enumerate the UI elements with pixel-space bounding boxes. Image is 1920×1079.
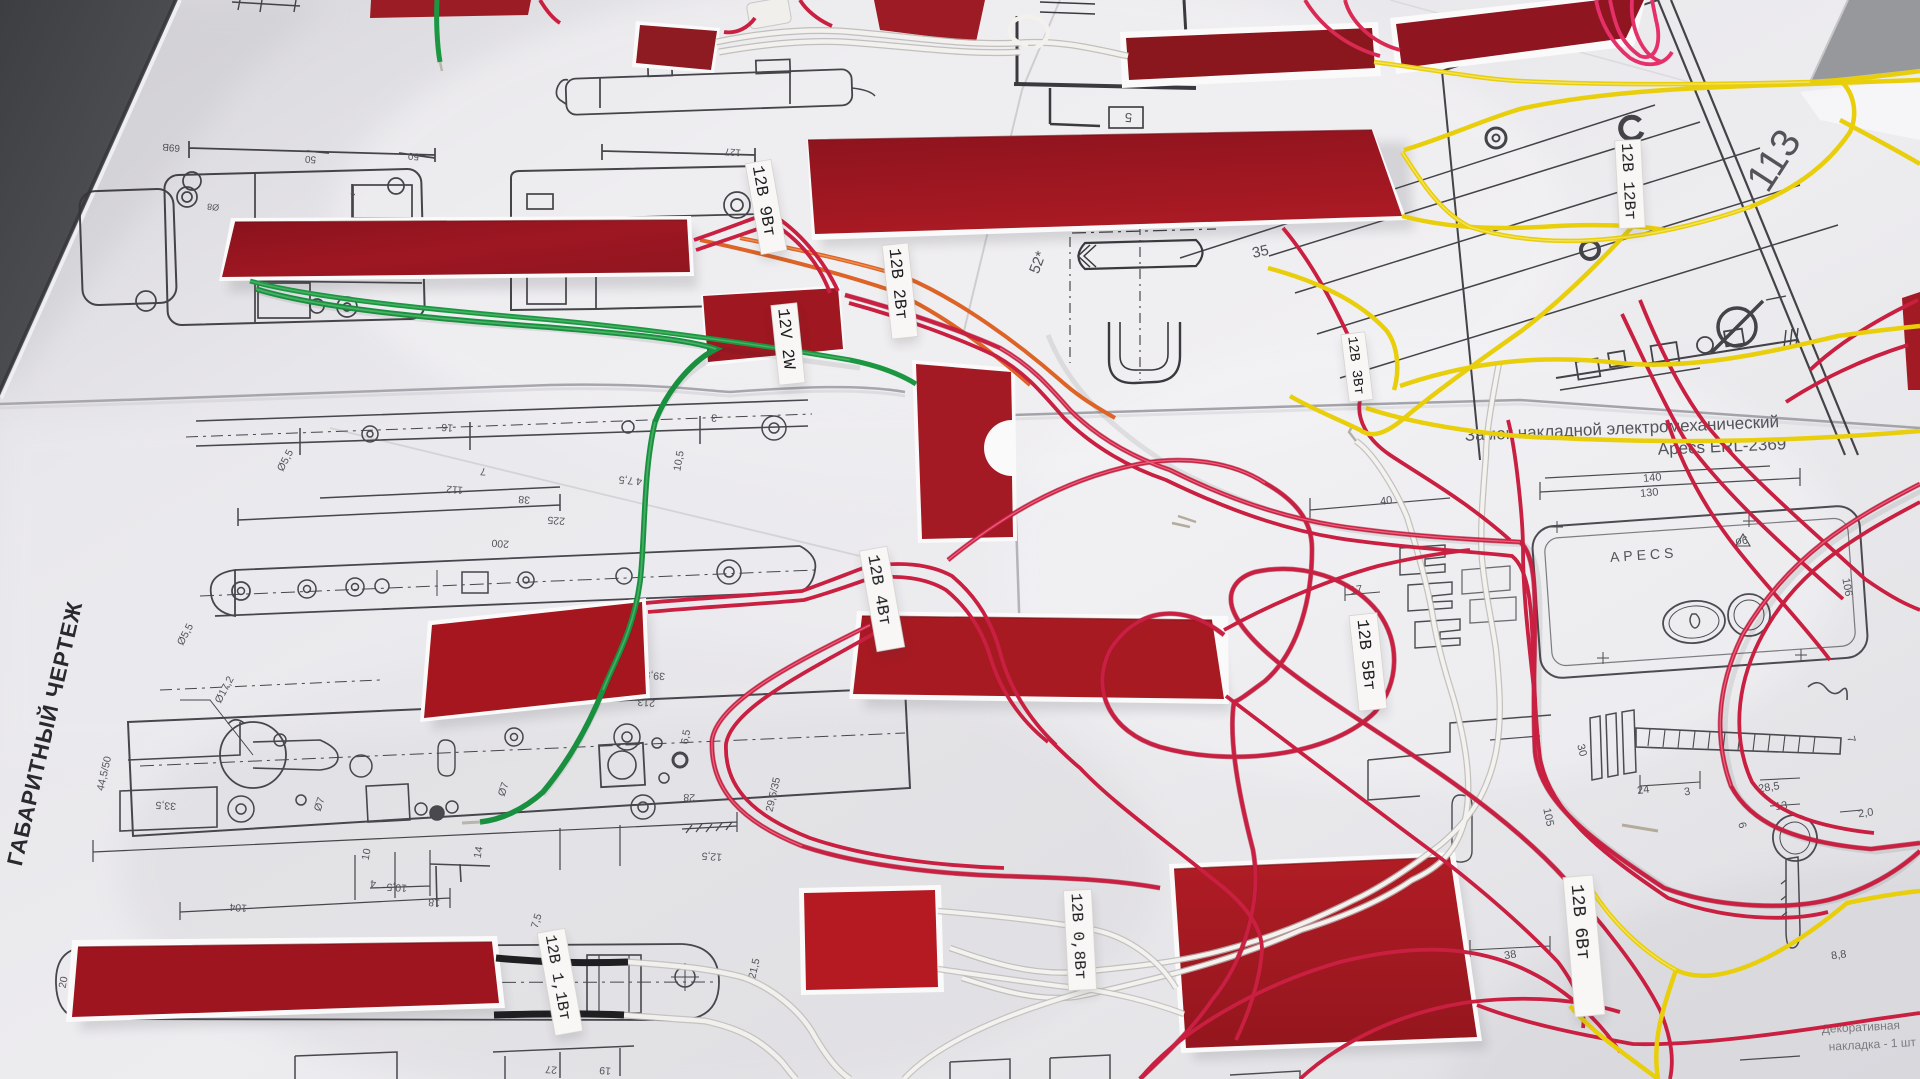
svg-text:4: 4 — [350, 190, 356, 200]
svg-text:28: 28 — [683, 791, 695, 804]
svg-text:225: 225 — [547, 514, 565, 527]
svg-text:112: 112 — [446, 483, 464, 496]
svg-text:Ø8: Ø8 — [207, 202, 220, 213]
svg-text:4: 4 — [370, 877, 377, 889]
svg-text:10: 10 — [360, 847, 374, 861]
svg-text:200: 200 — [491, 537, 509, 550]
svg-text:8,8: 8,8 — [1830, 948, 1847, 962]
svg-text:12,5: 12,5 — [701, 849, 722, 862]
svg-text:16: 16 — [441, 421, 454, 434]
svg-text:2,0: 2,0 — [1857, 806, 1874, 820]
svg-text:50: 50 — [407, 150, 419, 162]
svg-text:3: 3 — [711, 411, 718, 423]
svg-text:4 7,5: 4 7,5 — [618, 473, 642, 487]
svg-text:40: 40 — [1380, 495, 1393, 508]
svg-text:127: 127 — [724, 145, 742, 157]
svg-text:24: 24 — [1636, 783, 1650, 797]
svg-text:104: 104 — [229, 901, 247, 914]
svg-text:50: 50 — [304, 153, 316, 165]
svg-text:27: 27 — [545, 1063, 558, 1076]
svg-text:5: 5 — [1124, 110, 1132, 125]
svg-text:20: 20 — [57, 975, 71, 989]
svg-text:38: 38 — [518, 493, 531, 506]
svg-text:14: 14 — [472, 845, 486, 859]
svg-text:10,5: 10,5 — [386, 880, 407, 893]
svg-text:19: 19 — [599, 1064, 612, 1077]
svg-text:33,5: 33,5 — [155, 799, 176, 812]
svg-text:140: 140 — [1643, 471, 1662, 485]
svg-text:18: 18 — [428, 896, 441, 909]
svg-text:130: 130 — [1640, 486, 1659, 500]
svg-text:6,5: 6,5 — [679, 728, 693, 745]
svg-text:69В: 69В — [162, 141, 181, 154]
svg-text:7: 7 — [480, 465, 487, 477]
svg-text:35: 35 — [1251, 242, 1271, 262]
